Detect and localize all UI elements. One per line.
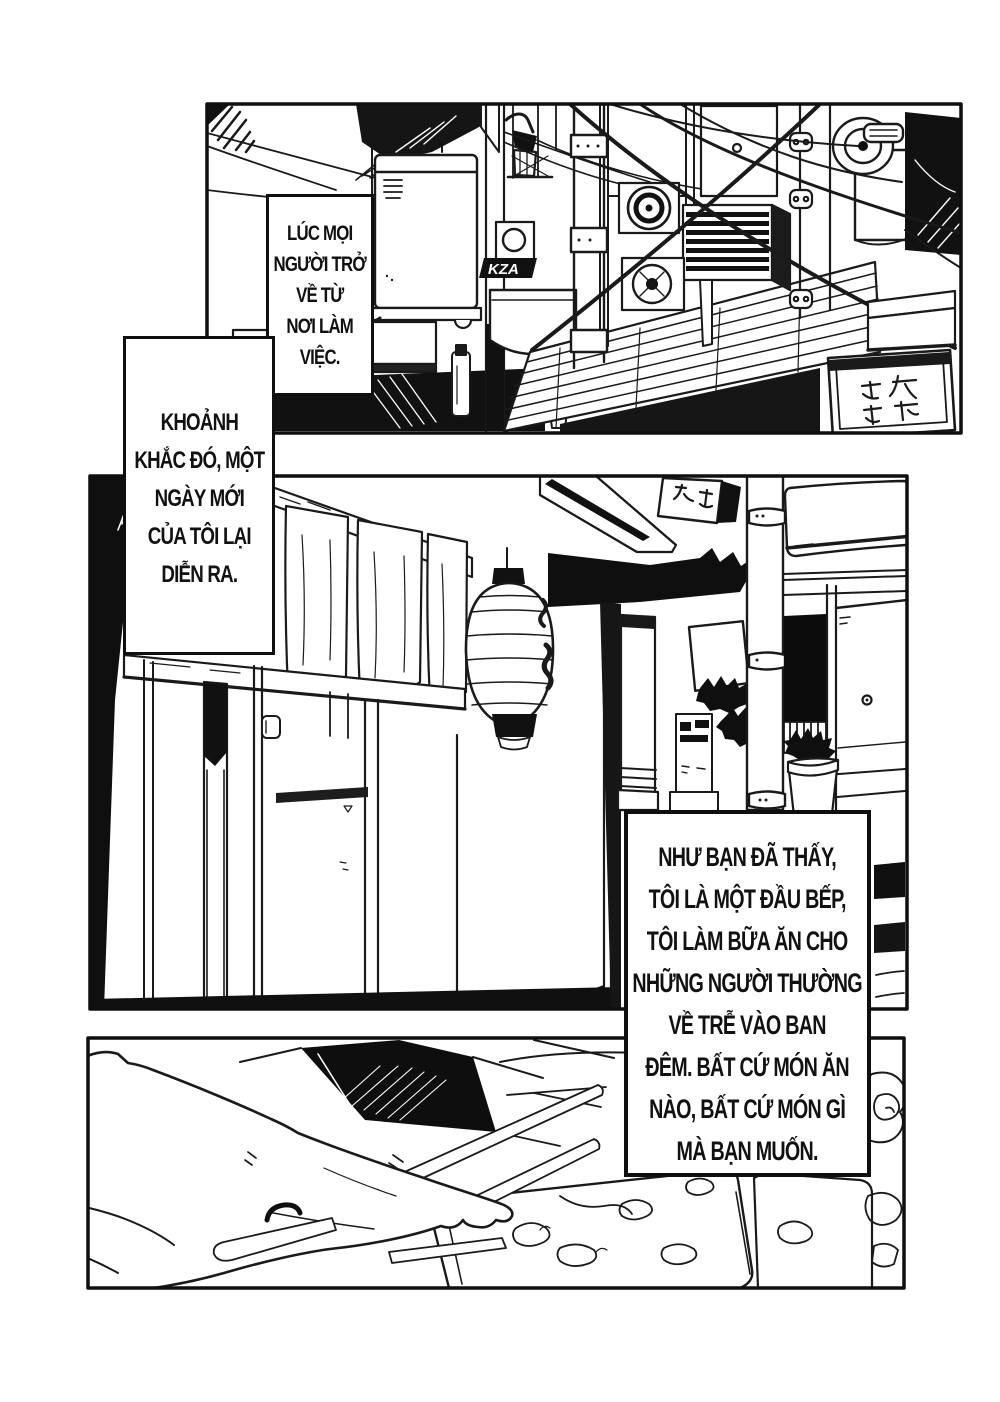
- svg-text:KZA: KZA: [488, 261, 519, 278]
